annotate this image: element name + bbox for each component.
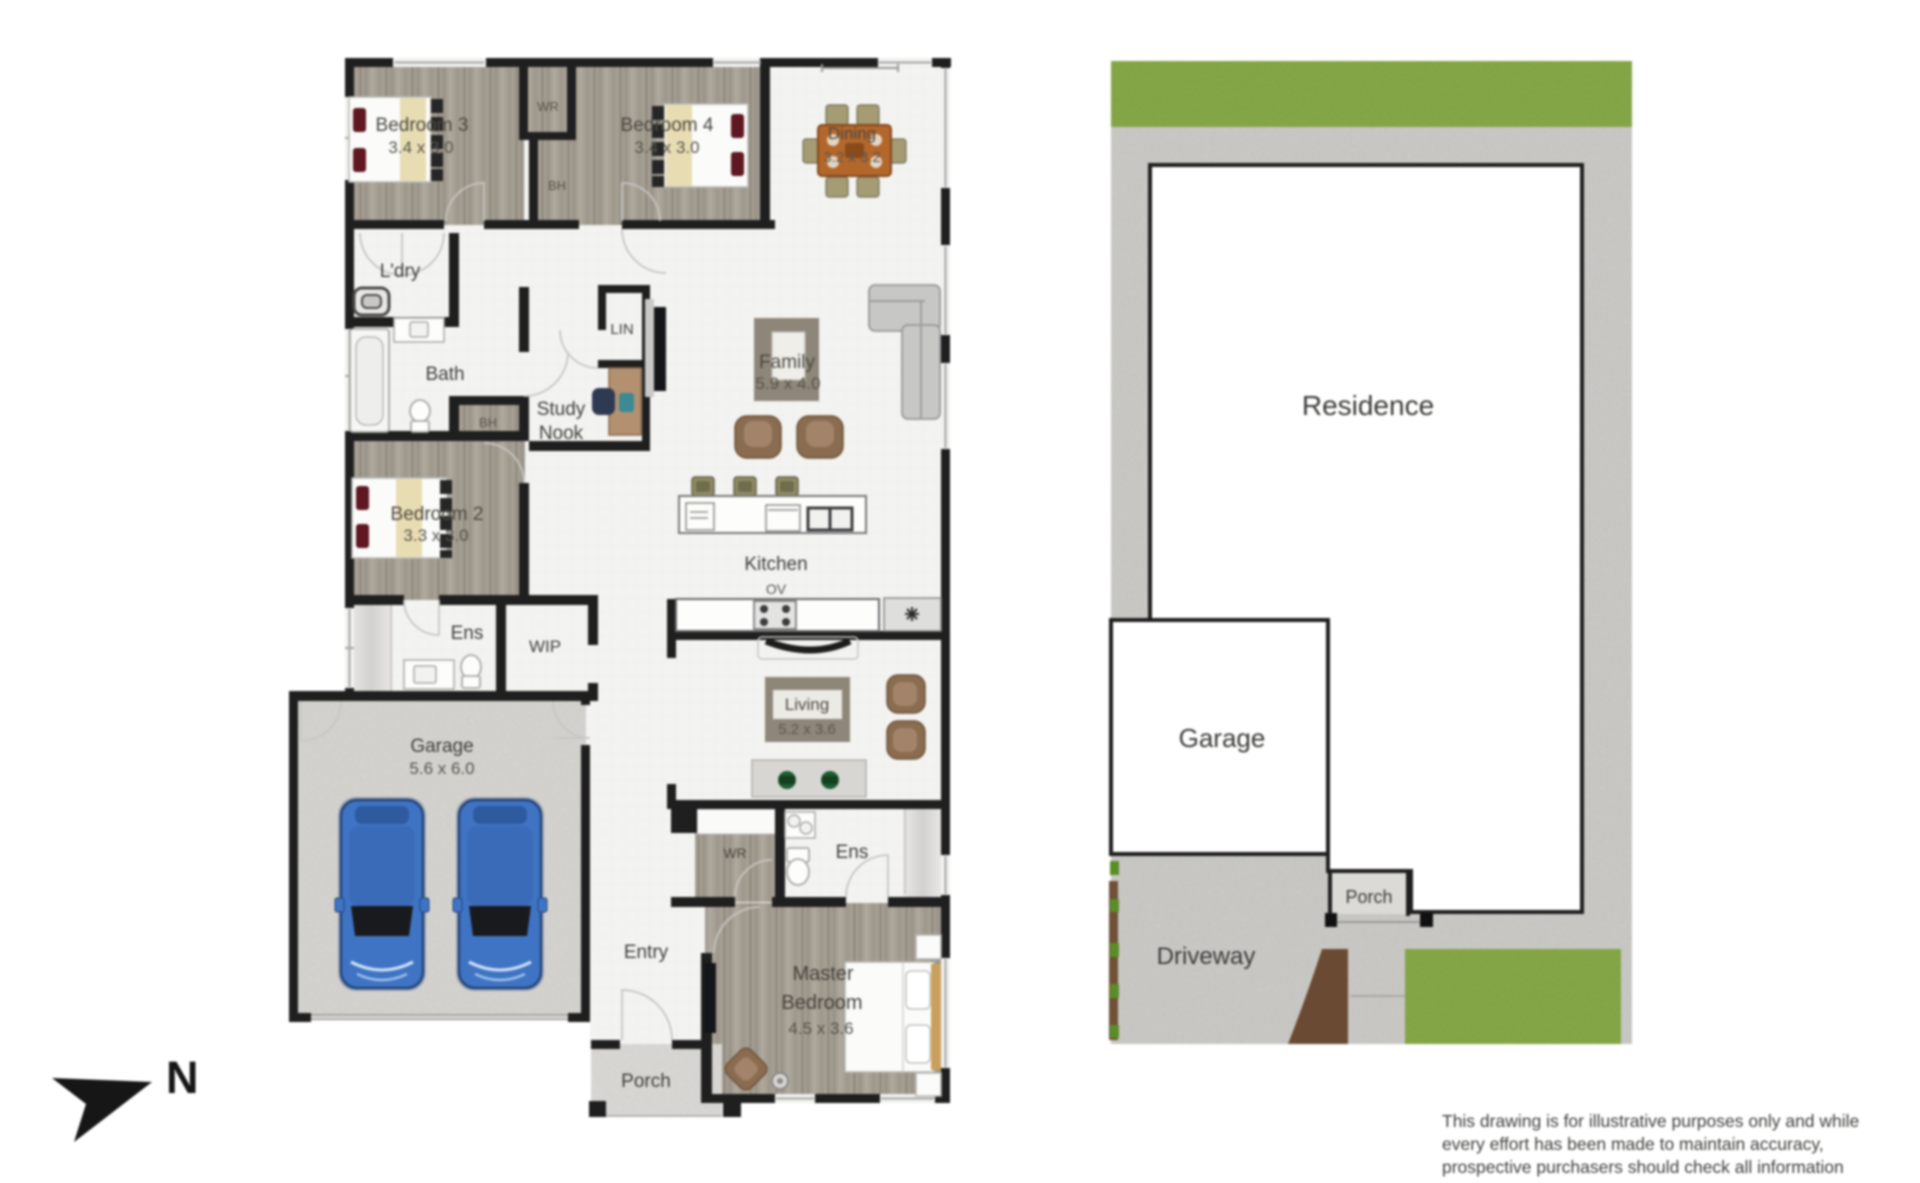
svg-text:Living: Living xyxy=(785,695,829,714)
svg-text:5.2 x 3.6: 5.2 x 3.6 xyxy=(778,721,836,738)
svg-text:Entry: Entry xyxy=(624,942,669,963)
svg-text:Bedroom 3: Bedroom 3 xyxy=(376,115,469,136)
svg-text:BH: BH xyxy=(548,178,566,193)
svg-text:4.5 x 3.6: 4.5 x 3.6 xyxy=(788,1019,853,1038)
svg-text:L'dry: L'dry xyxy=(380,261,421,282)
svg-text:Garage: Garage xyxy=(1179,723,1266,753)
svg-text:Master: Master xyxy=(792,963,853,985)
svg-text:OV: OV xyxy=(766,581,787,597)
svg-text:Study: Study xyxy=(537,399,586,420)
svg-text:Driveway: Driveway xyxy=(1157,943,1256,970)
svg-text:Porch: Porch xyxy=(621,1071,671,1092)
svg-text:N: N xyxy=(166,1052,199,1103)
svg-text:3.4 x 3.0: 3.4 x 3.0 xyxy=(634,138,699,157)
svg-text:Garage: Garage xyxy=(410,736,473,757)
svg-text:5.9 x 4.0: 5.9 x 4.0 xyxy=(755,374,820,393)
svg-text:3.4 x 3.0: 3.4 x 3.0 xyxy=(388,138,453,157)
svg-text:Ens: Ens xyxy=(836,842,869,863)
svg-text:BH: BH xyxy=(479,415,497,430)
svg-text:5.6 x 6.0: 5.6 x 6.0 xyxy=(409,759,474,778)
svg-text:every effort has been made to: every effort has been made to maintain a… xyxy=(1442,1134,1824,1154)
svg-text:3.2 x 3.2: 3.2 x 3.2 xyxy=(823,149,881,166)
svg-text:Ens: Ens xyxy=(451,623,484,644)
svg-text:Residence: Residence xyxy=(1302,390,1434,421)
svg-text:Kitchen: Kitchen xyxy=(744,554,807,575)
svg-text:WR: WR xyxy=(723,845,746,861)
svg-text:Dining: Dining xyxy=(828,124,876,143)
svg-text:Bath: Bath xyxy=(425,364,464,385)
svg-text:Bedroom: Bedroom xyxy=(781,992,862,1014)
svg-text:Nook: Nook xyxy=(539,423,584,444)
svg-text:This drawing is for illustrati: This drawing is for illustrative purpose… xyxy=(1442,1111,1859,1131)
svg-text:3.3 x 3.0: 3.3 x 3.0 xyxy=(403,526,468,545)
svg-text:Porch: Porch xyxy=(1345,887,1392,907)
svg-text:WR: WR xyxy=(537,99,559,114)
svg-text:Family: Family xyxy=(759,352,815,373)
svg-text:Bedroom 4: Bedroom 4 xyxy=(621,115,714,136)
svg-text:WIP: WIP xyxy=(529,637,561,656)
svg-text:LIN: LIN xyxy=(610,321,633,338)
svg-text:prospective purchasers should: prospective purchasers should check all … xyxy=(1442,1157,1844,1177)
svg-text:Bedroom 2: Bedroom 2 xyxy=(391,504,484,525)
